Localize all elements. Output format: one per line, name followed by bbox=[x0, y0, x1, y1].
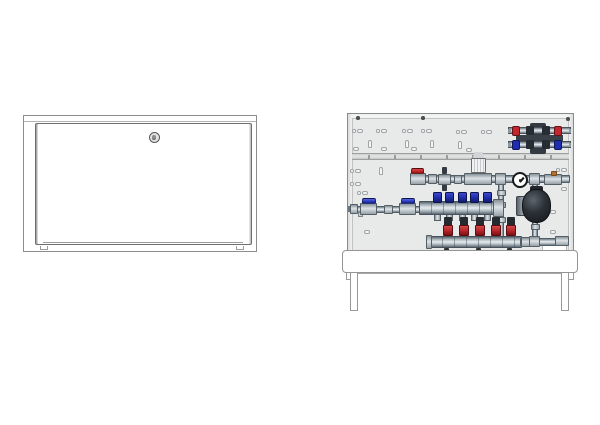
panel-screw bbox=[421, 116, 425, 120]
panel-hole bbox=[402, 129, 406, 133]
panel-hole bbox=[376, 129, 380, 133]
door-bottom-flange bbox=[43, 242, 243, 243]
panel-screw bbox=[566, 117, 570, 121]
pressure-gauge bbox=[512, 172, 528, 188]
flow-meter-cap bbox=[470, 192, 479, 203]
return-valve-red-cap bbox=[491, 225, 501, 236]
panel-hole bbox=[421, 129, 425, 133]
union-fitting bbox=[384, 205, 393, 214]
return-valve-red-cap bbox=[506, 225, 516, 236]
flow-meter-cap bbox=[445, 192, 454, 203]
cylinder-lock-icon bbox=[149, 132, 160, 143]
panel-slot bbox=[461, 130, 467, 134]
panel-keyhole bbox=[379, 167, 383, 175]
panel-slot bbox=[550, 230, 556, 234]
panel-slot bbox=[561, 187, 567, 191]
panel-hole bbox=[357, 191, 361, 195]
panel-slot bbox=[357, 129, 363, 133]
panel-slot bbox=[426, 129, 432, 133]
panel-hole bbox=[481, 130, 485, 134]
manifold-end-cap bbox=[426, 235, 432, 249]
panel-keyhole bbox=[405, 140, 409, 148]
pipe-nipple bbox=[569, 143, 572, 147]
red-valve-knob bbox=[554, 126, 562, 136]
panel-slot bbox=[353, 147, 359, 151]
supply-ball-valve-body bbox=[410, 173, 426, 185]
end-fitting bbox=[555, 236, 569, 246]
return-manifold bbox=[430, 236, 522, 248]
stand-notch-right bbox=[569, 272, 574, 280]
panel-hole bbox=[350, 182, 354, 186]
ball-valve-body bbox=[399, 203, 416, 215]
blue-valve-knob bbox=[512, 140, 520, 150]
union-fitting bbox=[526, 140, 534, 149]
panel-slot bbox=[381, 147, 387, 151]
union-fitting bbox=[542, 140, 550, 149]
technical-drawing bbox=[0, 0, 600, 425]
tee-fitting bbox=[529, 173, 540, 185]
open-cabinet-view bbox=[347, 113, 574, 252]
base-cover-panel bbox=[342, 250, 578, 273]
panel-hole bbox=[456, 130, 460, 134]
panel-screw bbox=[356, 116, 360, 120]
panel-slot bbox=[550, 210, 556, 214]
return-valve-red-cap bbox=[459, 225, 469, 236]
panel-slot bbox=[362, 191, 368, 195]
stand-leg-right bbox=[561, 272, 569, 311]
heat-meter-unit bbox=[508, 123, 571, 154]
riser-union bbox=[497, 190, 506, 196]
blue-valve-knob bbox=[554, 140, 562, 150]
rail-slot bbox=[446, 155, 448, 159]
panel-keyhole bbox=[458, 141, 462, 149]
gauge-hub bbox=[519, 179, 522, 182]
panel-slot bbox=[355, 182, 361, 186]
panel-slot bbox=[355, 169, 361, 173]
panel-slot bbox=[407, 129, 413, 133]
rail-slot bbox=[368, 155, 370, 159]
door-tab-left bbox=[40, 246, 48, 250]
circulation-pump bbox=[522, 189, 551, 223]
union-fitting bbox=[526, 126, 534, 135]
panel-keyhole bbox=[430, 140, 434, 148]
panel-slot bbox=[364, 230, 370, 234]
return-valve-red-cap bbox=[443, 225, 453, 236]
rail-slot bbox=[394, 155, 396, 159]
panel-slot bbox=[561, 168, 567, 172]
panel-slot bbox=[411, 147, 417, 151]
flow-meter-cap bbox=[433, 192, 442, 203]
lock-core bbox=[152, 135, 156, 139]
stand-back-edge bbox=[357, 273, 562, 274]
panel-slot bbox=[486, 130, 492, 134]
red-valve-knob bbox=[512, 126, 520, 136]
mounting-rail bbox=[352, 153, 569, 160]
panel-hole bbox=[352, 129, 356, 133]
return-valve-red-cap bbox=[475, 225, 485, 236]
thermostatic-head bbox=[471, 158, 486, 173]
flow-meter-cap bbox=[458, 192, 467, 203]
check-valve-body bbox=[438, 174, 451, 185]
rail-slot bbox=[498, 155, 500, 159]
union-fitting bbox=[454, 175, 462, 184]
ball-valve-body bbox=[360, 203, 377, 215]
door-tab-right bbox=[236, 246, 244, 250]
tee-fitting bbox=[495, 173, 506, 185]
supply-manifold bbox=[419, 201, 503, 215]
flow-meter-cap bbox=[483, 192, 492, 203]
pipe-nipple bbox=[508, 129, 511, 133]
panel-keyhole bbox=[368, 140, 372, 148]
panel-slot bbox=[466, 148, 472, 152]
closed-cabinet-view bbox=[23, 115, 257, 252]
blue-valve-handle bbox=[401, 198, 415, 204]
rail-slot bbox=[550, 155, 552, 159]
mixing-valve-body bbox=[464, 173, 492, 185]
union-fitting bbox=[542, 126, 550, 135]
valve-stem-bottom bbox=[442, 184, 447, 191]
rail-slot bbox=[420, 155, 422, 159]
cabinet-door bbox=[35, 123, 252, 245]
valve-stem-top bbox=[442, 167, 447, 174]
pump-union bbox=[531, 224, 540, 230]
union-fitting bbox=[428, 174, 437, 184]
panel-slot bbox=[381, 129, 387, 133]
red-valve-handle bbox=[411, 168, 424, 174]
air-vent-brass bbox=[551, 171, 557, 176]
pipe-nipple bbox=[569, 129, 572, 133]
cabinet-top-edge bbox=[24, 121, 256, 122]
rail-slot bbox=[524, 155, 526, 159]
tee-fitting bbox=[529, 236, 540, 247]
manifold-end-elbow bbox=[493, 199, 504, 217]
stand-leg-left bbox=[350, 272, 358, 311]
blue-valve-handle bbox=[362, 198, 376, 204]
pipe-nipple bbox=[508, 143, 511, 147]
end-fitting bbox=[350, 204, 358, 214]
stand-notch-left bbox=[346, 272, 351, 280]
panel-hole bbox=[350, 169, 354, 173]
